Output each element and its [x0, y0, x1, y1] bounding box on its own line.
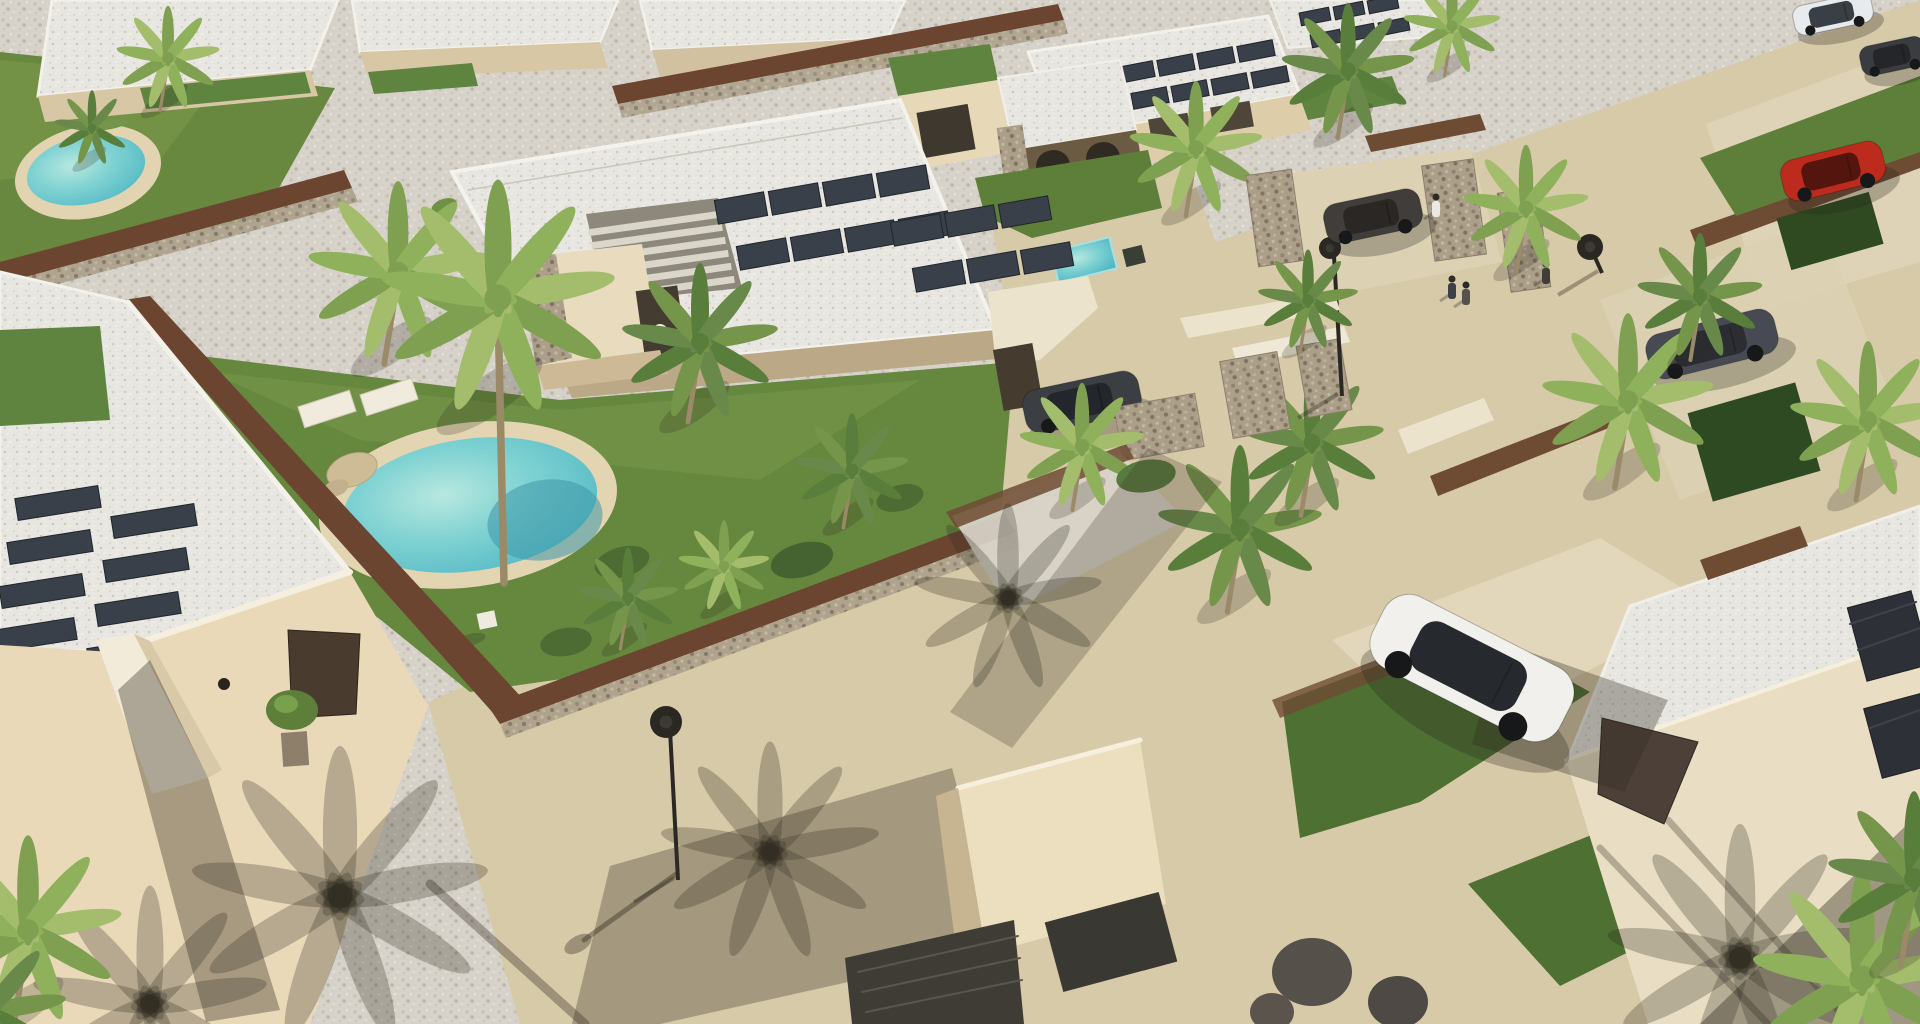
- palm-left-edge-1-crown: [17, 919, 39, 941]
- palm-bottom-center-2-crown: [719, 561, 729, 571]
- palm-plot-a-2-crown: [88, 124, 97, 133]
- palm-right-4-crown: [1302, 294, 1314, 306]
- palm-bottom-center-1-crown: [622, 592, 634, 604]
- render-canvas: [0, 0, 1920, 1024]
- palm-right-6-crown: [1693, 289, 1707, 303]
- street-lamp-3-head-highlight: [1585, 242, 1595, 252]
- pedestrian-5-head: [1463, 282, 1470, 289]
- palm-plot-a-1-crown: [162, 52, 174, 64]
- pedestrian-4-body: [1448, 283, 1456, 299]
- palm-shadow-br-crown: [1725, 943, 1756, 974]
- bush-ball-1: [1272, 938, 1352, 1006]
- palm-shadow-bottom-left-2-crown: [137, 991, 164, 1018]
- palm-right-2-crown: [1446, 20, 1457, 31]
- aerial-villa-development-render: [0, 0, 1920, 1024]
- palm-garden-giant-crown: [485, 285, 512, 312]
- pedestrian-5-body: [1462, 289, 1470, 305]
- palm-garden-2-crown: [691, 333, 709, 351]
- pedestrian-1-body: [1432, 201, 1440, 217]
- foreground-sedum-roof: [0, 326, 110, 426]
- palm-garden-3-crown: [846, 464, 859, 477]
- foreground-plant-pot: [281, 731, 309, 767]
- palm-shadow-bottom-left-1-crown: [323, 879, 357, 913]
- palm-promenade-2-crown: [1304, 434, 1321, 451]
- pedestrian-4-head: [1449, 276, 1456, 283]
- palm-right-1-crown: [1340, 62, 1355, 77]
- foreground-spotlight: [218, 678, 230, 690]
- pedestrian-6-body: [1542, 268, 1550, 284]
- palm-top-mid-crown: [1188, 140, 1203, 155]
- foreground-plant-highlight: [274, 695, 298, 713]
- yucca-bush-crown: [1075, 439, 1089, 453]
- palm-right-3-crown: [1519, 201, 1533, 215]
- palm-right-5-crown: [1618, 390, 1638, 410]
- palm-right-7-crown: [1859, 411, 1877, 429]
- palm-promenade-1-crown: [1231, 519, 1250, 538]
- house-d-window: [916, 104, 975, 158]
- palm-shadow-on-path-1-crown: [997, 587, 1019, 609]
- street-lamp-1-head-highlight: [660, 716, 673, 729]
- pedestrian-1-head: [1433, 194, 1440, 201]
